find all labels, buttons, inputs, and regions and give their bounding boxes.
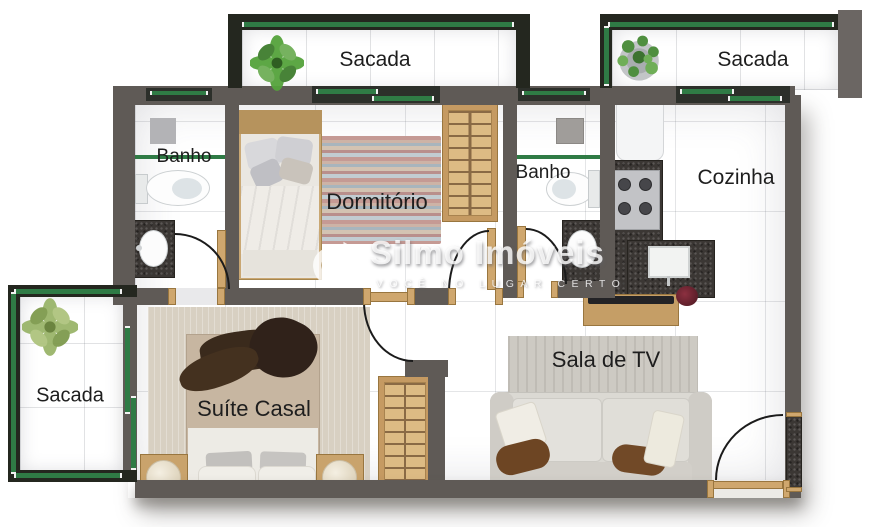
suite-sliding-panel xyxy=(131,396,136,470)
floor-plan: Sacada Sacada Sacada Banho Dormitório Ba… xyxy=(0,0,870,527)
plant xyxy=(22,298,78,356)
entry-sideboard-trim xyxy=(786,487,802,492)
room-label-banho1: Banho xyxy=(157,146,212,168)
sliding-panel xyxy=(372,96,434,101)
wall-left xyxy=(113,86,135,305)
room-label-banho2: Banho xyxy=(516,162,571,184)
railing xyxy=(14,473,122,478)
watermark: Silmo Imóveis VOCÊ NO LUGAR CERTO xyxy=(308,232,628,304)
railing xyxy=(604,26,609,86)
balcony-tl-wall-right xyxy=(516,14,530,88)
watermark-tagline: VOCÊ NO LUGAR CERTO xyxy=(376,278,626,290)
railing xyxy=(242,22,514,27)
bathroom1-window-glass xyxy=(150,91,208,95)
door-jamb xyxy=(217,288,225,305)
single-bed-headboard xyxy=(238,110,322,134)
room-label-sacada-left: Sacada xyxy=(36,385,104,408)
fridge xyxy=(616,103,664,161)
room-label-dormitorio: Dormitório xyxy=(326,189,427,215)
balcony-tl-wall-left xyxy=(228,14,242,88)
wall-stub-vertical xyxy=(428,377,445,482)
bathroom1-faucet xyxy=(136,245,142,251)
door-jamb xyxy=(168,288,176,305)
entry-sideboard-trim xyxy=(786,412,802,417)
door-opening-floor xyxy=(176,288,217,305)
bathroom2-cabinet xyxy=(556,118,584,144)
wall-stub-horizontal xyxy=(405,360,448,377)
sliding-panel xyxy=(680,89,734,94)
bathroom1-sink xyxy=(139,230,168,267)
room-label-sala-de-tv: Sala de TV xyxy=(552,347,660,373)
potted-plant xyxy=(612,30,666,88)
bathroom2-glass-shelf xyxy=(512,155,600,159)
stove-burner xyxy=(639,178,652,191)
wall-bottom xyxy=(135,480,801,498)
single-bed-foot-blanket xyxy=(243,250,317,276)
door-jamb xyxy=(707,480,714,498)
entry-door-leaf xyxy=(713,481,783,489)
watermark-brand: Silmo Imóveis xyxy=(370,234,605,272)
plant xyxy=(250,34,304,92)
decor-flowers xyxy=(676,286,698,306)
stove-burner xyxy=(639,202,652,215)
kitchen-sink xyxy=(648,246,690,278)
room-label-sacada-top-right: Sacada xyxy=(717,48,788,72)
bedroom-wardrobe-hangers xyxy=(448,110,492,216)
bathroom2-window-glass xyxy=(522,91,586,95)
railing xyxy=(608,22,834,27)
sliding-panel xyxy=(728,96,782,101)
watermark-logo-icon xyxy=(308,238,364,290)
balcony-tr-wall-right xyxy=(838,10,862,98)
kitchen-faucet xyxy=(667,276,670,286)
toilet2-tank xyxy=(588,170,600,208)
railing xyxy=(11,292,16,474)
sliding-panel xyxy=(316,89,378,94)
entry-sideboard xyxy=(786,416,802,488)
railing xyxy=(14,289,122,294)
room-label-sacada-top-left: Sacada xyxy=(339,48,410,72)
suite-wardrobe-hangers xyxy=(384,382,426,490)
stove-burner xyxy=(618,178,631,191)
room-label-suite-casal: Suíte Casal xyxy=(197,396,311,422)
room-label-cozinha: Cozinha xyxy=(697,166,774,190)
suite-sliding-panel xyxy=(125,326,130,414)
wall-bathroom1-bedroom xyxy=(225,103,239,293)
toilet-bowl-rim xyxy=(172,178,202,199)
stove-burner xyxy=(618,202,631,215)
bathroom1-niche xyxy=(150,118,176,144)
